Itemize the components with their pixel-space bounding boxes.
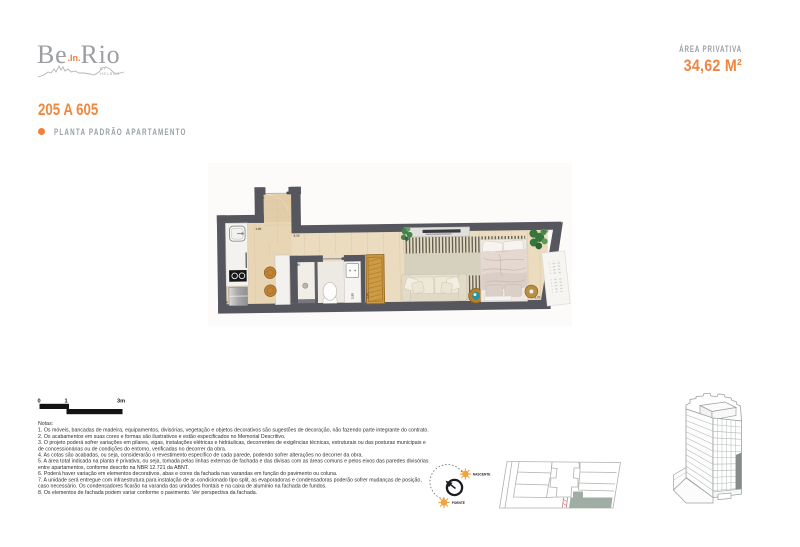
svg-text:2.15: 2.15 [222, 300, 228, 304]
svg-text:1: 1 [65, 399, 68, 405]
svg-text:2.62: 2.62 [221, 217, 227, 221]
svg-text:1.43: 1.43 [543, 229, 549, 233]
svg-text:1.06: 1.06 [259, 196, 265, 200]
svg-text:0: 0 [38, 399, 41, 405]
svg-text:1.70: 1.70 [534, 295, 540, 299]
svg-text:1.55: 1.55 [350, 293, 354, 299]
svg-text:1.90: 1.90 [255, 227, 261, 231]
svg-text:NASCENTE: NASCENTE [473, 473, 491, 477]
svg-text:POENTE: POENTE [452, 501, 465, 505]
svg-text:1.55: 1.55 [365, 293, 369, 299]
svg-text:2.36: 2.36 [294, 263, 300, 267]
svg-text:3m: 3m [117, 399, 125, 405]
svg-text:8.10: 8.10 [294, 234, 300, 238]
